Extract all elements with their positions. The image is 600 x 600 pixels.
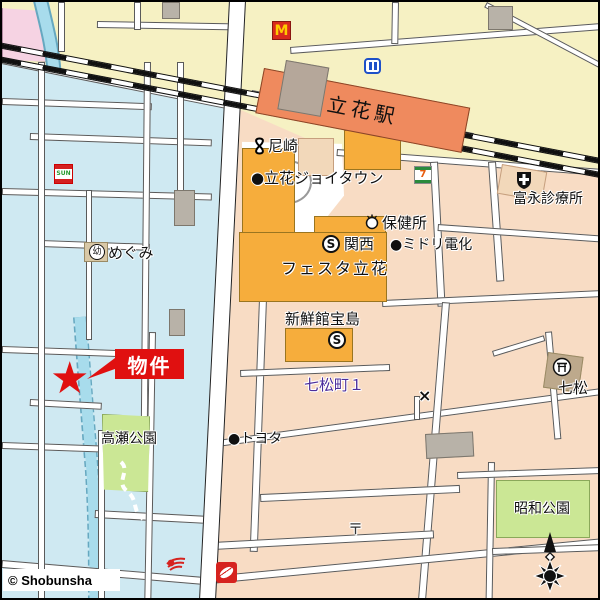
- property-star-marker[interactable]: ★: [50, 357, 89, 401]
- poi-midori-denka: ●ミドリ電化: [390, 238, 472, 252]
- red-bird-logo-icon: [165, 555, 187, 572]
- supermarket-icon-kansai: S: [322, 235, 340, 253]
- poi-toyota: ●トヨタ: [228, 432, 282, 446]
- station-name: 立花駅: [326, 94, 400, 127]
- poi-nanamatsucho: 七松町１: [304, 378, 364, 393]
- park-footpath: [107, 457, 167, 527]
- poi-shinsenkan: 新鮮館宝島: [285, 312, 360, 327]
- station-annex-building: [277, 60, 329, 117]
- road: [38, 62, 45, 600]
- road: [86, 190, 92, 340]
- sun-store-icon: SUN: [54, 164, 73, 184]
- mcdonalds-icon: M: [272, 21, 291, 40]
- building: [425, 431, 474, 458]
- bank-icon: [252, 137, 267, 155]
- seven-digit: 7: [420, 170, 427, 180]
- mcdonalds-m: M: [275, 24, 289, 38]
- poi-kansai-super: 関西: [344, 237, 374, 252]
- poi-hokensho: 保健所: [382, 216, 427, 231]
- building: [174, 190, 195, 226]
- building: [169, 309, 185, 336]
- joytown-building: [242, 148, 295, 236]
- health-center-icon: [364, 214, 380, 230]
- building: [162, 2, 180, 19]
- x-mark: ×: [418, 388, 431, 404]
- compass-rose-icon: [528, 530, 574, 594]
- building: [488, 6, 513, 30]
- kindergarten-icon: 幼: [89, 244, 105, 260]
- poi-festa-tachibana: フェスタ立花: [281, 261, 389, 277]
- poi-megumi: めぐみ: [108, 246, 153, 261]
- road: [58, 2, 65, 52]
- hospital-icon: [515, 170, 533, 190]
- road: [134, 2, 141, 30]
- police-box-icon: [364, 58, 381, 74]
- poi-showa-park: 昭和公園: [514, 502, 570, 516]
- poi-tominaga-clinic: 富永診療所: [513, 192, 583, 206]
- supermarket-icon-takarajima: S: [328, 331, 346, 349]
- poi-nanamatsu-shrine: 七松: [558, 381, 588, 396]
- seven-eleven-icon: 7: [414, 166, 432, 184]
- road: [391, 2, 399, 44]
- sun-sign-text: SUN: [56, 171, 70, 177]
- property-label[interactable]: 物件: [115, 349, 184, 379]
- poi-amagasaki-shinkin: 尼崎: [268, 139, 298, 154]
- store-logo-icon: [216, 562, 237, 583]
- shrine-icon: [552, 357, 572, 377]
- copyright-badge: © Shobunsha: [3, 569, 120, 591]
- city-map: 立花駅 M 7 S S 幼: [0, 0, 600, 600]
- poi-takase-park: 高瀬公園: [101, 432, 157, 446]
- poi-joytown: ●立花ジョイタウン: [251, 171, 384, 186]
- post-office-symbol: 〒: [348, 522, 363, 537]
